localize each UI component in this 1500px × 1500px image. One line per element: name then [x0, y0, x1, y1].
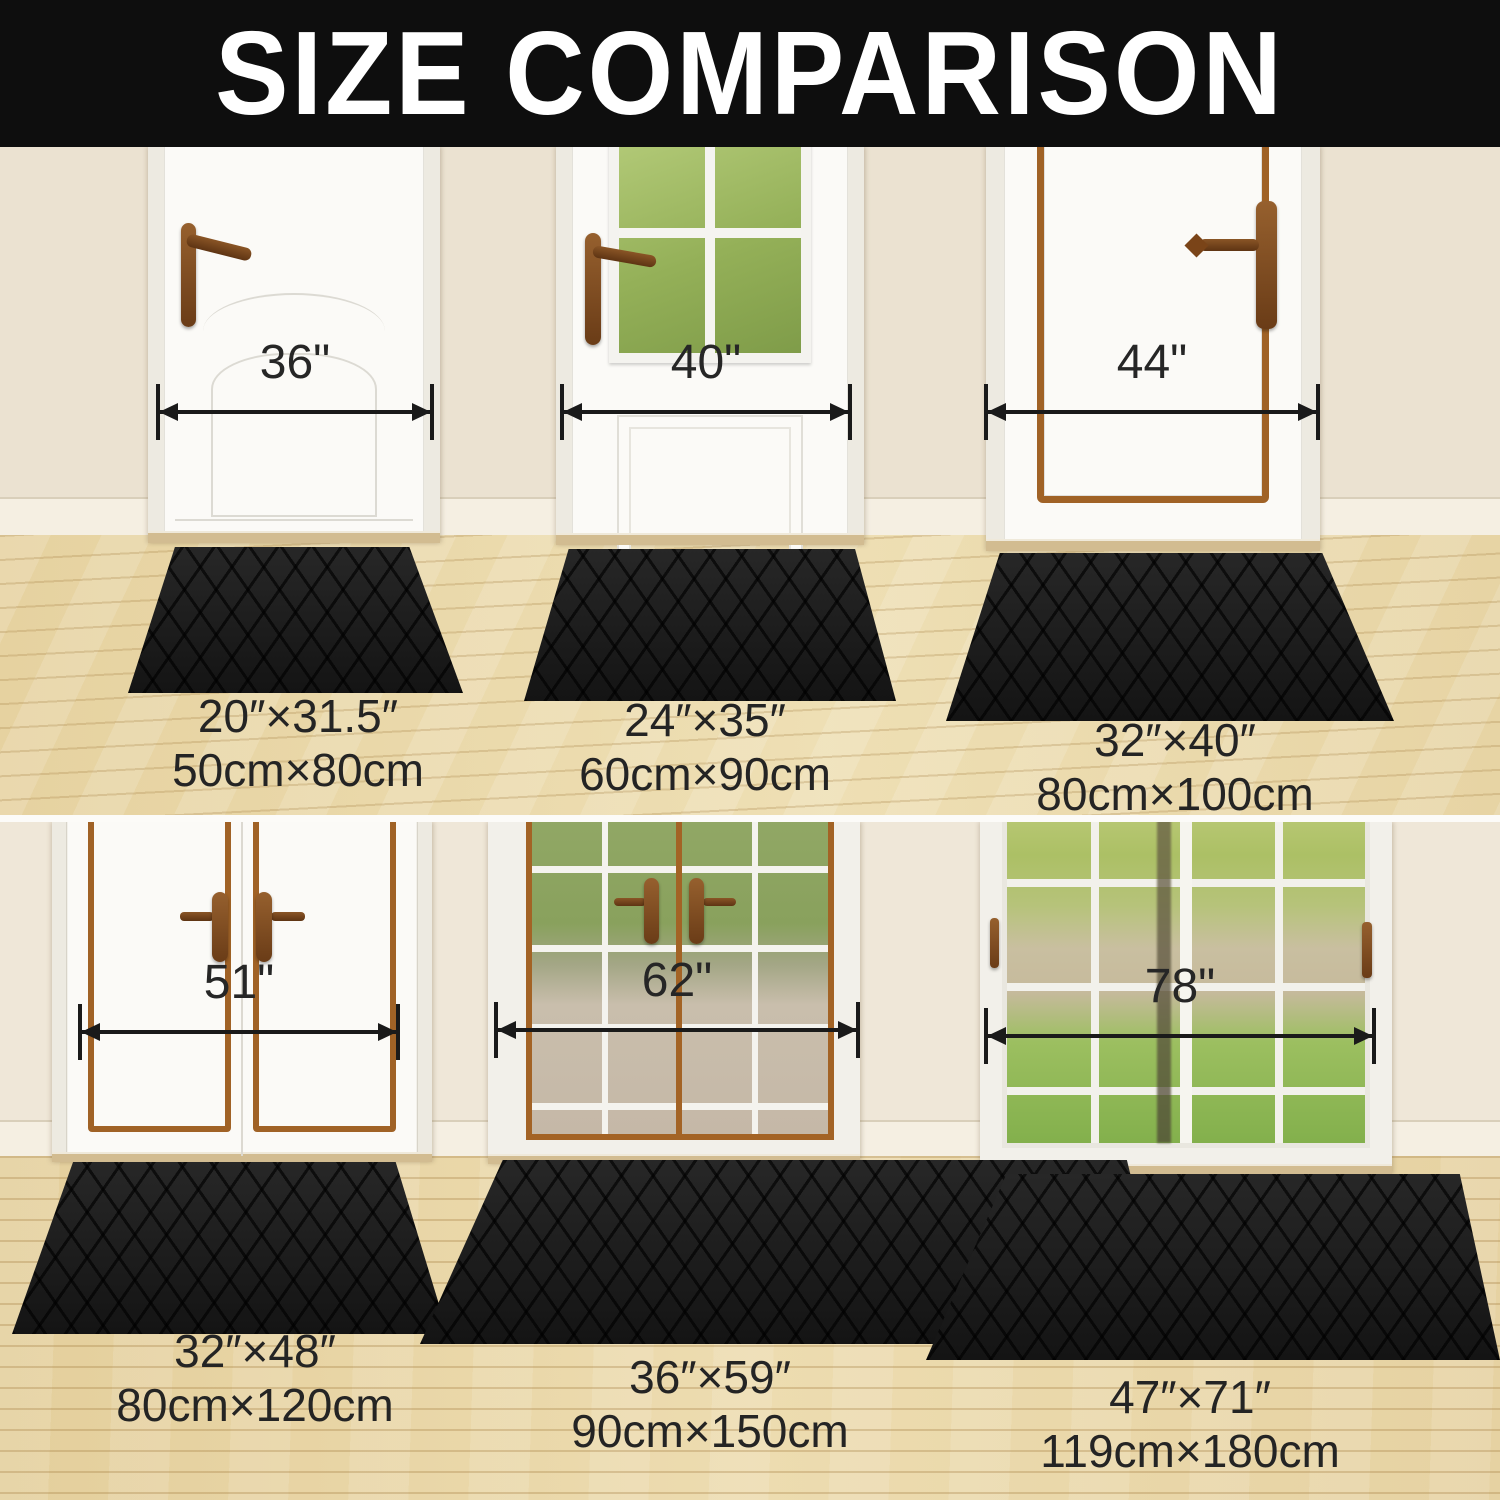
mat-size-cm: 80cm×120cm	[55, 1378, 455, 1432]
door-handle-plate	[689, 878, 704, 944]
arrow-head-left-icon	[159, 403, 178, 421]
mat-size-label: 24″×35″ 60cm×90cm	[510, 693, 900, 802]
door-handle-spindle	[703, 898, 736, 906]
measurement-arrow-62: 62"	[494, 1002, 860, 1058]
arrow-shaft	[564, 410, 848, 414]
mat-size-inches: 32″×48″	[55, 1324, 455, 1378]
door-sill	[148, 531, 440, 543]
doormat-60x90	[524, 549, 896, 701]
door-width-label: 62"	[494, 953, 860, 1008]
arrow-shaft	[160, 410, 430, 414]
door-width-label: 40"	[560, 335, 852, 390]
scene-single-doors: 36" 40" 44" 20″×31.5	[0, 147, 1500, 815]
doormat-80x100	[946, 553, 1394, 721]
arrow-head-left-icon	[81, 1023, 100, 1041]
door-panel-line	[175, 519, 413, 521]
arrow-head-left-icon	[987, 403, 1006, 421]
door-sill	[556, 533, 864, 545]
arrow-head-right-icon	[830, 403, 849, 421]
scene-divider	[0, 815, 1500, 822]
doormat-50x80	[128, 547, 463, 693]
header-banner: SIZE COMPARISON	[0, 0, 1500, 147]
door-jamb	[52, 822, 67, 1162]
mat-size-label: 36″×59″ 90cm×150cm	[495, 1350, 925, 1459]
mat-size-inches: 20″×31.5″	[118, 689, 478, 743]
measurement-arrow-51: 51"	[78, 1004, 400, 1060]
arrow-head-right-icon	[838, 1021, 857, 1039]
door-handle-plate	[1256, 201, 1277, 329]
doormat-119x180	[926, 1174, 1500, 1360]
measurement-arrow-44: 44"	[984, 384, 1320, 440]
door-handle-spindle	[271, 912, 305, 921]
mat-size-cm: 80cm×100cm	[950, 767, 1400, 815]
mat-size-inches: 24″×35″	[510, 693, 900, 747]
arrow-shaft	[498, 1028, 856, 1032]
door-jamb	[417, 822, 432, 1162]
arrow-head-right-icon	[412, 403, 431, 421]
arrow-shaft	[988, 1034, 1372, 1038]
mat-size-label: 32″×48″ 80cm×120cm	[55, 1324, 455, 1433]
arrow-head-left-icon	[563, 403, 582, 421]
door-width-label: 51"	[78, 955, 400, 1010]
scene-double-doors: 51" 62" 78" 32″×48″	[0, 822, 1500, 1500]
door-handle-spindle	[614, 898, 646, 906]
arrow-head-right-icon	[378, 1023, 397, 1041]
mat-size-cm: 90cm×150cm	[495, 1404, 925, 1458]
mat-size-cm: 50cm×80cm	[118, 743, 478, 797]
doormat-size-comparison-infographic: SIZE COMPARISON	[0, 0, 1500, 1500]
mat-size-inches: 32″×40″	[950, 713, 1400, 767]
door-width-label: 36"	[156, 335, 434, 390]
mat-size-cm: 119cm×180cm	[945, 1424, 1435, 1478]
measurement-arrow-78: 78"	[984, 1008, 1376, 1064]
arrow-head-left-icon	[987, 1027, 1006, 1045]
mat-size-inches: 36″×59″	[495, 1350, 925, 1404]
door-sill	[986, 539, 1320, 551]
arrow-head-left-icon	[497, 1021, 516, 1039]
door-width-label: 78"	[984, 959, 1376, 1014]
arrow-head-right-icon	[1354, 1027, 1373, 1045]
arrow-shaft	[82, 1030, 396, 1034]
door-window-panes	[619, 147, 801, 353]
measurement-arrow-40: 40"	[560, 384, 852, 440]
door-handle-plate	[212, 892, 228, 962]
door-handle-plate	[644, 878, 659, 944]
mat-size-label: 47″×71″ 119cm×180cm	[945, 1370, 1435, 1479]
doormat-80x120	[12, 1162, 448, 1334]
door-brown-trim	[1037, 147, 1269, 503]
mat-size-label: 32″×40″ 80cm×100cm	[950, 713, 1400, 815]
page-title: SIZE COMPARISON	[215, 5, 1285, 142]
arrow-shaft	[988, 410, 1316, 414]
mat-size-label: 20″×31.5″ 50cm×80cm	[118, 689, 478, 798]
door-handle-plate	[256, 892, 272, 962]
arrow-head-right-icon	[1298, 403, 1317, 421]
mat-size-cm: 60cm×90cm	[510, 747, 900, 801]
door-handle-spindle	[180, 912, 214, 921]
mat-size-inches: 47″×71″	[945, 1370, 1435, 1424]
measurement-arrow-36: 36"	[156, 384, 434, 440]
door-panel-arc	[203, 293, 385, 331]
door-width-label: 44"	[984, 335, 1320, 390]
